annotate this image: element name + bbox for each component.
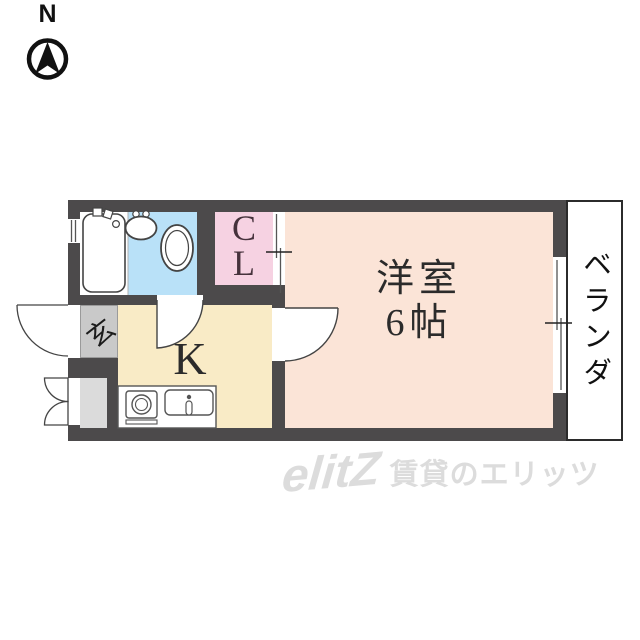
western-room-size: 6帖 [285,302,553,346]
bathtub-icon [83,208,125,292]
north-label: N [24,2,71,27]
floor-plan-page: N ベランダ [0,0,640,640]
entrance-label: 玄 [80,305,118,358]
entrance-door-swing-icon [17,305,68,356]
kitchen-counter [118,386,216,428]
closet-label: CL [216,211,272,282]
kitchen-label: K [160,332,220,385]
washbasin-icon [126,211,157,240]
storage-double-door-icon [45,378,69,425]
toilet-icon [161,225,193,271]
compass: N [24,2,71,92]
kitchen-sink-icon [165,390,213,415]
western-room-name: 洋室 [285,258,553,302]
north-arrow-icon [24,27,71,87]
western-room-label: 洋室 6帖 [285,258,553,345]
